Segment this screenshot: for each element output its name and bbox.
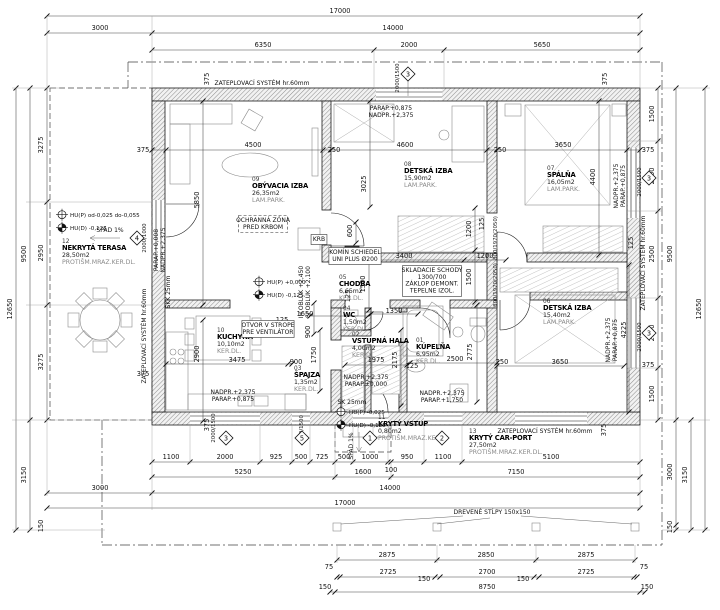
opening-marker: 3 <box>401 67 415 81</box>
dimension-label: 725 <box>316 453 329 461</box>
annotation-text: PARAP.+1,750 <box>421 397 463 404</box>
drawing-shape <box>375 253 487 262</box>
annotation-text: SK 25mm <box>338 399 367 406</box>
dimension-label: 14000 <box>383 24 404 32</box>
room-area: 4,00m2 <box>352 345 376 352</box>
drawing-shape <box>424 413 462 425</box>
tv-board <box>312 128 318 176</box>
drawing-shape <box>178 358 184 364</box>
marker-number: 3 <box>406 70 410 78</box>
annotation-text: UNI PLUS Ø200 <box>332 256 378 263</box>
room-area: 28,50m2 <box>62 252 90 259</box>
level-mark: HU(P) od-0,025 do-0,055 <box>56 209 140 221</box>
marker-number: 1 <box>368 434 372 442</box>
dimension-label: 3650 <box>552 358 569 366</box>
room-area: 27,50m2 <box>469 442 497 449</box>
dimension-label: 1500 <box>648 386 656 403</box>
drawing-shape <box>185 334 194 345</box>
carport-post <box>532 523 540 531</box>
dimension-label: 2875 <box>578 551 595 559</box>
room-name: ŠPAJZA <box>294 370 321 379</box>
drawing-shape <box>93 341 107 352</box>
drawing-shape <box>170 349 176 355</box>
annotation: PARAP.+0,008NADPR.+2,375 <box>153 227 167 272</box>
dimension-label: 5650 <box>534 41 551 49</box>
dimension-label: 1000 <box>362 453 379 461</box>
annotation: SPÁD 1% <box>348 432 355 459</box>
dimension-label: 9500 <box>666 246 674 263</box>
dimension-label: 925 <box>270 453 283 461</box>
dimension-label: 4400 <box>589 169 597 186</box>
dimension-label: 3000 <box>92 24 109 32</box>
annotation: NADPR.+2,375PARAP.±0,000 <box>344 374 389 388</box>
bedroom-door <box>497 232 527 262</box>
room-floor: PROTIŠM.MRAZ.KER.DL. <box>469 447 543 456</box>
annotation: NADPR.+2,375PARAP.+0,875 <box>605 317 619 362</box>
drawing-shape <box>322 101 331 210</box>
annotation: NADPR.+2,375PARAP.+0,875 <box>211 389 256 403</box>
drawing-shape <box>178 349 184 355</box>
opening-marker: 2 <box>435 431 449 445</box>
annotation-text: ZATEPLOVACÍ SYSTÉM hr.60mm <box>140 288 148 383</box>
room-name: VSTUPNÁ HALA <box>352 336 410 345</box>
annotation-text: ZATEPLOVACÍ SYSTÉM hr.60mm <box>498 427 593 435</box>
dimension-label: 3000 <box>92 484 109 492</box>
dimension-label: 4500 <box>245 141 262 149</box>
dimension-label: 75 <box>325 563 333 571</box>
drawing-shape <box>252 350 261 361</box>
dimension-label: 14000 <box>380 484 401 492</box>
annotation: DREVENÉ STĹPY 150x150 <box>454 508 531 516</box>
nightstand <box>505 104 521 116</box>
drawing-shape <box>376 89 442 101</box>
annotation-text: SPÁD 1% <box>348 432 355 459</box>
room-floor: KER.DL. <box>339 295 363 302</box>
level-text: HU(D) -0,125 <box>267 293 304 299</box>
annotation-text: PARAP.±0,000 <box>345 381 387 388</box>
dimension-label: 250 <box>494 146 507 154</box>
room-floor: KER.DL. <box>294 386 318 393</box>
window-spec-label: 800/1970(2050) <box>493 263 499 307</box>
annotation-text: NADPR.+2,375 <box>160 227 167 272</box>
annotation: OCHRANNÁ ZÓNAPRED KRBOM <box>236 216 291 233</box>
dimension-label: 900 <box>304 326 312 339</box>
dimension-label: 2725 <box>578 568 595 576</box>
room-floor: LAM.PARK. <box>547 186 580 193</box>
room-area: 1,35m2 <box>294 379 318 386</box>
annotation-text: PRE VENTILÁTOR <box>243 329 294 336</box>
room-name: NEKRYTÁ TERASA <box>62 243 127 252</box>
window-spec-label: 2000/1500 <box>637 322 643 352</box>
dimension-label: 2850 <box>478 551 495 559</box>
drawing-shape <box>58 228 62 232</box>
dimension-label: 150 <box>37 520 45 533</box>
dimension-label: 2775 <box>466 344 474 361</box>
annotation: OTVOR V STROPEPRE VENTILÁTOR <box>242 321 295 338</box>
annotation-text: KRB <box>313 236 325 243</box>
room-name: SPÁLŇA <box>547 170 577 179</box>
dimension-label: 2725 <box>380 568 397 576</box>
dimension-label: 3400 <box>396 252 413 260</box>
drawing-shape <box>437 518 490 524</box>
dimension-label: 125 <box>478 218 486 231</box>
room-floor: PROTIŠM.MRAZ.KER. <box>378 433 442 442</box>
chair <box>439 130 449 140</box>
dimension-label: 1100 <box>435 453 452 461</box>
nightstand <box>612 104 626 116</box>
dimension-label: 150 <box>641 583 654 591</box>
annotation: SKK 25mm <box>165 275 172 308</box>
dimension-label: 3150 <box>20 467 28 484</box>
room-floor: KER.DL. <box>217 348 241 355</box>
level-text: HU(P) -0,025 <box>349 410 385 416</box>
drawing-shape <box>527 253 627 262</box>
dimension-label: 250 <box>328 146 341 154</box>
toilet <box>470 318 486 326</box>
annotation: ZATEPLOVACÍ SYSTÉM hr.60mm <box>639 215 647 310</box>
dimension-label: 1500 <box>465 269 473 286</box>
dimension-label: 2500 <box>447 355 464 363</box>
carport-post <box>433 523 441 531</box>
dimension-label: 375 <box>601 73 609 86</box>
dimension-label: 8750 <box>479 583 496 591</box>
room-area: 15,40m2 <box>543 312 571 319</box>
wardrobe <box>543 226 623 252</box>
annotation-text: SI OBLÚK +2,100 <box>305 266 312 318</box>
room-name: CHODBA <box>339 280 371 288</box>
drawing-shape <box>76 293 93 310</box>
room-floor: LAM.PARK. <box>404 182 437 189</box>
dimension-label: 6350 <box>255 41 272 49</box>
drawing-shape <box>515 413 587 425</box>
dimension-label: 375 <box>203 73 211 86</box>
sofa <box>170 104 232 124</box>
drawing-shape <box>337 425 341 429</box>
dimension-label: 5250 <box>235 468 252 476</box>
annotation: NADPR.+2,375PARAP.+0,875 <box>613 163 627 208</box>
chair <box>453 327 463 337</box>
window-spec-label: 2000/1500 <box>395 63 401 93</box>
dimension-label: 150 <box>319 583 332 591</box>
slope-arrow <box>90 236 120 241</box>
room-area: 26,35m2 <box>252 190 280 197</box>
marker-number: 2 <box>440 434 444 442</box>
annotation-text: PRED KRBOM <box>243 224 283 231</box>
dimension-label: 2000 <box>401 41 418 49</box>
room-floor: KER.DL. <box>416 358 440 365</box>
carport-post <box>333 523 341 531</box>
dimension-label: 2175 <box>391 352 399 369</box>
dimension-label: 2700 <box>479 568 496 576</box>
marker-number: 4 <box>135 234 139 242</box>
dimension-label: 2000 <box>217 453 234 461</box>
room-area: 6,95m2 <box>416 351 440 358</box>
drawing-shape <box>76 331 93 348</box>
floor-plan-canvas: 1700030001400063502000565012650950032752… <box>0 0 720 610</box>
room-area: 15,90m2 <box>404 175 432 182</box>
opening-marker: 3 <box>219 431 233 445</box>
dimension-label: 3275 <box>37 354 45 371</box>
annotation-text: PARAP.+0,875 <box>612 319 619 361</box>
annotation-text: ZATEPLOVACÍ SYSTÉM hr.60mm <box>639 215 647 310</box>
dimension-label: 2875 <box>379 551 396 559</box>
marker-number: 3 <box>647 174 651 182</box>
dimension-label: 600 <box>346 225 354 238</box>
annotation: SKLADACIE SCHODY1300/700ZÁKLOP DEMONT.TE… <box>402 266 463 297</box>
annotation: ZATEPLOVACÍ SYSTÉM hr.60mm <box>215 79 310 87</box>
dimension-label: 1350 <box>386 307 403 315</box>
drawing-shape <box>487 101 497 213</box>
room-name: KÚPEĽŇA <box>416 342 451 351</box>
dimension-label: 3650 <box>555 141 572 149</box>
annotation-text: PARAP.+0,875 <box>212 396 254 403</box>
coffee-table <box>222 153 278 177</box>
dimension-label: 100 <box>385 466 398 474</box>
fridge <box>285 394 306 410</box>
floor-plan-drawing: 1700030001400063502000565012650950032752… <box>0 0 720 610</box>
annotation: PARAP.+0,875NADPR.+2,375 <box>369 105 414 119</box>
dimension-label: 7150 <box>508 468 525 476</box>
dimension-label: 2900 <box>193 346 201 363</box>
drawing-shape <box>108 293 125 310</box>
dimension-label: 2950 <box>37 245 45 262</box>
dimension-label: 3000 <box>666 464 674 481</box>
room-area: 10,10m2 <box>217 341 245 348</box>
dimension-label: 1200 <box>465 221 473 238</box>
opening-marker: 5 <box>295 431 309 445</box>
level-mark: HU(D) -0,125 <box>253 289 304 301</box>
drawing-shape <box>341 516 463 524</box>
dimension-label: 1600 <box>355 468 372 476</box>
drawing-shape <box>62 224 66 228</box>
marker-number: 3 <box>224 434 228 442</box>
room-name: WC <box>343 311 355 319</box>
dimension-label: 375 <box>203 419 211 432</box>
drawing-shape <box>259 291 263 295</box>
room-floor: PROTIŠM.MRAZ.KER.DL. <box>62 257 136 266</box>
dimension-label: 12650 <box>6 299 14 320</box>
terrace-table <box>80 300 120 340</box>
slope-arrow <box>357 432 362 452</box>
room-area: 0,80m2 <box>378 428 402 435</box>
dimension-label: 3025 <box>360 176 368 193</box>
dimension-label: 17000 <box>330 7 351 15</box>
dimension-label: 150 <box>666 521 674 534</box>
dimension-label: 1750 <box>310 347 318 364</box>
drawing-shape <box>255 295 259 299</box>
dimension-label: 125 <box>627 237 635 250</box>
room-floor: KER.DL. <box>352 352 376 359</box>
room-name: DETSKÁ IZBA <box>543 303 592 312</box>
window-spec-label: 2000/1500 <box>637 167 643 197</box>
room-name: OBÝVACIA IZBA <box>252 181 309 190</box>
kitchen-counter <box>166 332 188 410</box>
drawing-shape <box>108 331 125 348</box>
room-area: 1,50m2 <box>343 319 367 326</box>
drawing-shape <box>68 313 79 327</box>
dimension-label: 950 <box>401 453 414 461</box>
desk <box>452 106 484 162</box>
dimension-label: 1100 <box>163 453 180 461</box>
marker-number: 3 <box>647 329 651 337</box>
drawing-shape <box>331 308 341 340</box>
dimension-label: 4600 <box>397 141 414 149</box>
dimension-label: 375 <box>137 146 150 154</box>
window-spec-label: 800/1970(2050) <box>493 216 499 260</box>
level-mark: HU(D) -0,125 <box>56 222 107 234</box>
dimension-label: 5100 <box>543 453 560 461</box>
drawing-shape <box>170 358 176 364</box>
annotation-text: ZATEPLOVACÍ SYSTÉM hr.60mm <box>215 79 310 87</box>
room-area: 16,05m2 <box>547 179 575 186</box>
level-text: HU(D) -0,125 <box>70 226 107 232</box>
annotation-text: NADPR.+2,375 <box>369 112 414 119</box>
room-floor: LAM.PARK. <box>543 319 576 326</box>
room-name: DETSKÁ IZBA <box>404 166 453 175</box>
dimension-label: 375 <box>642 361 655 369</box>
drawing-shape <box>471 326 485 342</box>
dimension-label: 3150 <box>681 467 689 484</box>
annotation: ZATEPLOVACÍ SYSTÉM hr.60mm <box>140 288 148 383</box>
dimension-label: 375 <box>642 146 655 154</box>
annotation-text: PARAP.+0,875 <box>620 165 627 207</box>
dimension-label: 1200 <box>477 252 494 260</box>
drawing-shape <box>190 413 260 425</box>
dimension-label: 900 <box>290 358 303 366</box>
dimension-label: 2500 <box>648 246 656 263</box>
drawing-shape <box>93 288 107 299</box>
dimension-label: 3475 <box>229 356 246 364</box>
annotation-text: DREVENÉ STĹPY 150x150 <box>454 508 531 516</box>
kitchen-sink <box>254 396 268 406</box>
annotation: IH OBLÚK +2,450SI OBLÚK +2,100 <box>298 266 312 319</box>
annotation-text: SKK 25mm <box>165 275 172 308</box>
annotation: KRB <box>311 235 327 245</box>
annotation: NADPR.+2,375PARAP.+1,750 <box>420 390 465 404</box>
window-spec-label: 2000/1500 <box>211 413 217 443</box>
annotation-text: TEPELNE IZOL. <box>409 287 454 294</box>
dimension-label: 1500 <box>648 106 656 123</box>
drawing-shape <box>165 300 230 308</box>
annotation: KOMÍN SCHIEDELUNI PLUS Ø200 <box>329 248 382 265</box>
annotation: SK 25mm <box>338 399 367 406</box>
marker-number: 5 <box>300 434 304 442</box>
dimension-label: 5850 <box>193 192 201 209</box>
armchair <box>241 109 263 131</box>
room-floor: LAM.PARK. <box>252 197 285 204</box>
drawing-shape <box>121 313 132 327</box>
dimension-label: 250 <box>496 358 509 366</box>
level-text: HU(P) od-0,025 do-0,055 <box>70 213 140 219</box>
carport-post <box>631 523 639 531</box>
room-floor: KER.DL. <box>343 326 367 333</box>
opening-marker: 1 <box>363 431 377 445</box>
level-text: HU(D) -0,125 <box>349 423 386 429</box>
dimension-label: 4225 <box>620 322 628 339</box>
dimension-label: 9500 <box>20 246 28 263</box>
dimension-label: 500 <box>295 453 308 461</box>
dimension-label: 75 <box>640 563 648 571</box>
wardrobe <box>500 268 618 292</box>
room-area: 6,65m2 <box>339 288 363 295</box>
dimension-label: 17000 <box>335 499 356 507</box>
sofa <box>170 124 190 184</box>
annotation: ZATEPLOVACÍ SYSTÉM hr.60mm <box>498 427 593 435</box>
dimension-label: 375 <box>600 424 608 437</box>
dimension-label: 12650 <box>695 299 703 320</box>
dimension-label: 150 <box>418 575 431 583</box>
dimension-label: 150 <box>517 575 530 583</box>
level-text: HU(P) +0,000 <box>267 280 306 286</box>
drawing-shape <box>185 318 194 329</box>
dimension-label: 3275 <box>37 137 45 154</box>
